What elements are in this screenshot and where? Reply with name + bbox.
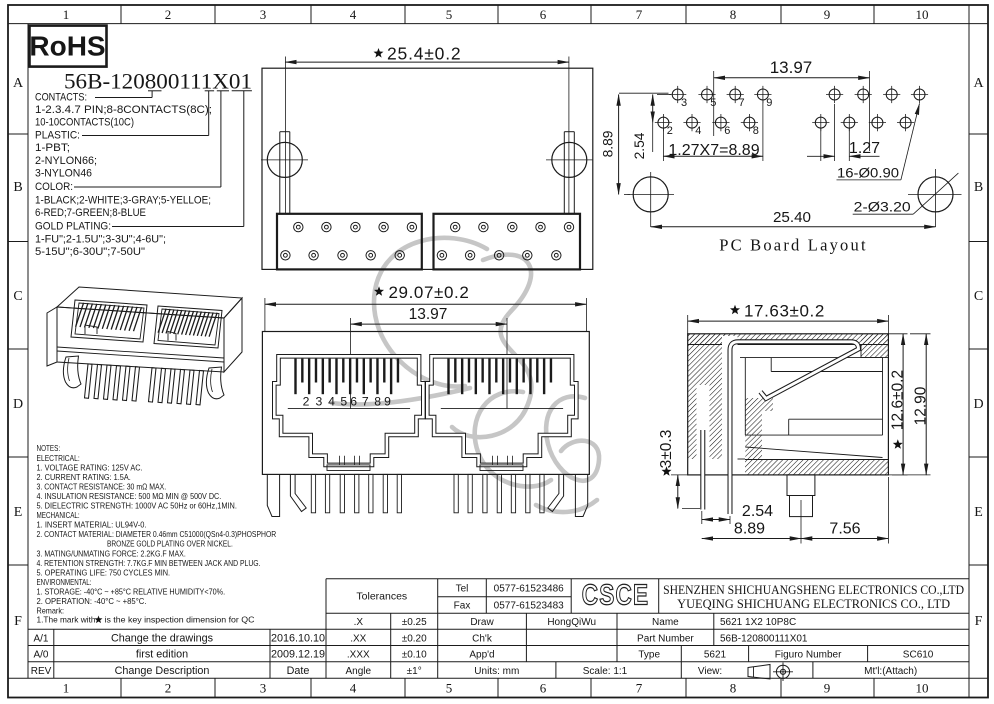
svg-text:Name: Name — [652, 617, 679, 628]
svg-text:5: 5 — [446, 7, 453, 22]
svg-text:2009.12.19: 2009.12.19 — [271, 649, 325, 661]
svg-text:A: A — [13, 76, 24, 91]
svg-text:Change the drawings: Change the drawings — [111, 632, 214, 644]
svg-text:10-10CONTACTS(10C): 10-10CONTACTS(10C) — [35, 117, 134, 129]
svg-text:9: 9 — [384, 394, 391, 408]
svg-text:4: 4 — [328, 394, 335, 408]
svg-text:Date: Date — [287, 665, 310, 677]
svg-text:F: F — [975, 614, 983, 629]
svg-text:F: F — [14, 614, 22, 629]
svg-text:10: 10 — [916, 7, 929, 22]
svg-text:C: C — [974, 289, 983, 304]
svg-text:1. INSERT MATERIAL: UL94V-0.: 1. INSERT MATERIAL: UL94V-0. — [37, 521, 147, 530]
svg-text:4. RETENTION STRENGTH: 7.7KG.F: 4. RETENTION STRENGTH: 7.7KG.F MIN BETWE… — [37, 559, 261, 568]
svg-text:9: 9 — [766, 97, 772, 109]
svg-text:NOTES:: NOTES: — [37, 444, 61, 453]
svg-text:8: 8 — [374, 394, 381, 408]
svg-text:2.54: 2.54 — [632, 132, 647, 159]
svg-text:1-PBT;: 1-PBT; — [35, 142, 70, 154]
svg-text:8: 8 — [730, 7, 737, 22]
svg-text:2: 2 — [303, 394, 310, 408]
svg-text:View:: View: — [698, 666, 722, 677]
svg-text:3-NYLON46: 3-NYLON46 — [35, 168, 92, 180]
svg-text:2. CURRENT RATING: 1.5A.: 2. CURRENT RATING: 1.5A. — [37, 473, 131, 482]
svg-text:.XX: .XX — [350, 633, 366, 644]
svg-text:3: 3 — [681, 97, 687, 109]
svg-text:2. CONTACT MATERIAL: DIAMETER: 2. CONTACT MATERIAL: DIAMETER 0.46mm C51… — [37, 530, 277, 539]
svg-text:±0.20: ±0.20 — [402, 633, 427, 644]
svg-text:Units: mm: Units: mm — [474, 666, 519, 677]
svg-text:3: 3 — [260, 681, 267, 696]
svg-text:SHENZHEN SHICHUANGSHENG ELECTR: SHENZHEN SHICHUANGSHENG ELECTRONICS CO.,… — [663, 583, 964, 597]
svg-text:56B-120800111X01: 56B-120800111X01 — [720, 633, 808, 644]
svg-text:4. INSULATION RESISTANCE: 500: 4. INSULATION RESISTANCE: 500 MΩ MIN @ 5… — [37, 492, 222, 501]
svg-text:GOLD PLATING:: GOLD PLATING: — [35, 221, 111, 233]
svg-text:12.90: 12.90 — [913, 386, 930, 425]
svg-text:6: 6 — [350, 394, 357, 408]
svg-text:App'd: App'd — [469, 650, 494, 661]
svg-text:5. OPERATING LIFE: 750 CYCLES: 5. OPERATING LIFE: 750 CYCLES MIN. — [37, 568, 171, 577]
svg-text:4: 4 — [350, 7, 357, 22]
svg-text:Scale: 1:1: Scale: 1:1 — [583, 666, 628, 677]
svg-text:E: E — [974, 505, 983, 520]
svg-text:A/1: A/1 — [33, 633, 48, 644]
svg-text:is the key inspection dimensio: is the key inspection dimension for QC — [105, 616, 255, 625]
svg-text:29.07±0.2: 29.07±0.2 — [389, 283, 470, 302]
svg-text:A/0: A/0 — [33, 650, 48, 661]
svg-text:7.56: 7.56 — [829, 521, 860, 538]
svg-text:25.40: 25.40 — [773, 209, 811, 226]
svg-text:10: 10 — [916, 681, 929, 696]
svg-text:1. VOLTAGE RATING: 125V AC.: 1. VOLTAGE RATING: 125V AC. — [37, 463, 143, 472]
svg-text:1.27X7=8.89: 1.27X7=8.89 — [668, 142, 759, 159]
svg-text:7: 7 — [636, 681, 643, 696]
svg-text:Change Description: Change Description — [115, 665, 210, 677]
svg-text:5: 5 — [340, 394, 347, 408]
svg-text:B: B — [974, 180, 983, 195]
svg-text:1-FU";2-1.5U";3-3U";4-6U";: 1-FU";2-1.5U";3-3U";4-6U"; — [35, 234, 166, 246]
svg-text:8.89: 8.89 — [601, 130, 616, 157]
svg-text:7: 7 — [362, 394, 369, 408]
svg-text:5. DIELECTRIC STRENGTH: 1000V: 5. DIELECTRIC STRENGTH: 1000V AC 50Hz or… — [37, 502, 237, 511]
svg-text:6-RED;7-GREEN;8-BLUE: 6-RED;7-GREEN;8-BLUE — [35, 207, 146, 219]
svg-text:PC Board Layout: PC Board Layout — [719, 236, 868, 255]
svg-text:3: 3 — [316, 394, 323, 408]
svg-text:Fax: Fax — [454, 601, 471, 612]
svg-text:1: 1 — [63, 7, 70, 22]
svg-text:Mt'l:(Attach): Mt'l:(Attach) — [864, 666, 917, 677]
svg-text:8: 8 — [730, 681, 737, 696]
svg-text:6: 6 — [540, 681, 547, 696]
svg-text:9: 9 — [824, 681, 831, 696]
svg-text:5621 1X2 10P8C: 5621 1X2 10P8C — [720, 617, 796, 628]
svg-text:Angle: Angle — [346, 666, 372, 677]
svg-text:.XXX: .XXX — [347, 650, 370, 661]
svg-text:2016.10.10: 2016.10.10 — [271, 632, 325, 644]
svg-text:5621: 5621 — [704, 650, 727, 661]
svg-text:1: 1 — [63, 681, 70, 696]
svg-text:6: 6 — [540, 7, 547, 22]
svg-text:YUEQING SHICHUANG ELECTRONICS: YUEQING SHICHUANG ELECTRONICS CO., LTD — [677, 597, 950, 611]
svg-text:1.27: 1.27 — [849, 140, 880, 157]
svg-text:B: B — [13, 180, 22, 195]
svg-text:13.97: 13.97 — [770, 58, 813, 77]
svg-text:Tolerances: Tolerances — [356, 591, 407, 603]
svg-text:Tel: Tel — [456, 584, 469, 595]
svg-text:12.6±0.2: 12.6±0.2 — [889, 370, 906, 430]
svg-text:ELECTRICAL:: ELECTRICAL: — [37, 454, 80, 463]
svg-text:25.4±0.2: 25.4±0.2 — [387, 44, 461, 64]
svg-text:±1°: ±1° — [407, 666, 422, 677]
svg-text:first edition: first edition — [136, 649, 188, 661]
svg-text:A: A — [973, 76, 984, 91]
svg-text:4: 4 — [695, 125, 701, 137]
svg-text:9: 9 — [824, 7, 831, 22]
svg-text:Type: Type — [638, 650, 660, 661]
svg-text:SC610: SC610 — [903, 650, 934, 661]
svg-text:Remark:: Remark: — [37, 607, 65, 616]
svg-text:C: C — [13, 289, 22, 304]
svg-text:3: 3 — [260, 7, 267, 22]
svg-text:REV: REV — [31, 666, 52, 677]
svg-text:2.54: 2.54 — [742, 503, 773, 520]
svg-text:7: 7 — [739, 97, 745, 109]
svg-text:D: D — [13, 397, 23, 412]
svg-text:2-Ø3.20: 2-Ø3.20 — [854, 200, 911, 216]
svg-text:5-15U";6-30U";7-50U": 5-15U";6-30U";7-50U" — [35, 246, 145, 258]
svg-text:2: 2 — [165, 7, 172, 22]
svg-text:1-2.3.4.7 PIN;8-8CONTACTS(8C);: 1-2.3.4.7 PIN;8-8CONTACTS(8C); — [35, 104, 212, 116]
svg-text:2. OPERATION: -40°C ~ +85°C.: 2. OPERATION: -40°C ~ +85°C. — [37, 597, 147, 606]
svg-text:Ch'k: Ch'k — [472, 633, 493, 644]
svg-text:PLASTIC:: PLASTIC: — [35, 130, 80, 142]
svg-text:D: D — [973, 397, 983, 412]
svg-text:3±0.3: 3±0.3 — [658, 430, 675, 469]
svg-text:CSCE: CSCE — [582, 578, 650, 611]
svg-text:17.63±0.2: 17.63±0.2 — [744, 301, 825, 320]
svg-text:HongQiWu: HongQiWu — [547, 617, 596, 628]
svg-text:8: 8 — [753, 125, 759, 137]
svg-text:COLOR:: COLOR: — [35, 181, 73, 193]
svg-text:±0.25: ±0.25 — [402, 617, 427, 628]
svg-text:CONTACTS:: CONTACTS: — [35, 92, 87, 104]
svg-text:56B-120800111X01: 56B-120800111X01 — [64, 68, 252, 93]
svg-text:Figuro Number: Figuro Number — [775, 650, 842, 661]
svg-text:1.The mark with: 1.The mark with — [37, 616, 96, 625]
svg-text:E: E — [14, 505, 23, 520]
svg-text:7: 7 — [636, 7, 643, 22]
svg-text:±0.10: ±0.10 — [402, 650, 427, 661]
svg-text:1. STORAGE: -40°C ~ +85°C RELA: 1. STORAGE: -40°C ~ +85°C RELATIVE HUMID… — [37, 587, 226, 596]
svg-text:BRONZE GOLD PLATING OVER NICKE: BRONZE GOLD PLATING OVER NICKEL. — [107, 540, 233, 549]
svg-text:2-NYLON66;: 2-NYLON66; — [35, 155, 97, 167]
svg-text:3. MATING/UNMATING FORCE: 2.2K: 3. MATING/UNMATING FORCE: 2.2KG.F MAX. — [37, 549, 186, 558]
svg-text:Draw: Draw — [470, 617, 494, 628]
svg-text:0577-61523483: 0577-61523483 — [494, 601, 565, 612]
svg-text:.X: .X — [354, 617, 364, 628]
svg-text:8.89: 8.89 — [734, 521, 765, 538]
svg-text:13.97: 13.97 — [409, 306, 448, 323]
svg-text:RoHS: RoHS — [29, 31, 105, 62]
svg-text:5: 5 — [446, 681, 453, 696]
svg-text:16-Ø0.90: 16-Ø0.90 — [837, 165, 899, 181]
svg-text:2: 2 — [667, 125, 673, 137]
svg-text:1-BLACK;2-WHITE;3-GRAY;5-YELLO: 1-BLACK;2-WHITE;3-GRAY;5-YELLOE; — [35, 195, 211, 207]
svg-text:Part Number: Part Number — [637, 633, 694, 644]
svg-text:4: 4 — [350, 681, 357, 696]
svg-text:2: 2 — [165, 681, 172, 696]
svg-text:6: 6 — [724, 125, 730, 137]
svg-text:0577-61523486: 0577-61523486 — [494, 584, 565, 595]
svg-text:MECHANICAL:: MECHANICAL: — [37, 511, 80, 520]
svg-text:ENVIRONMENTAL:: ENVIRONMENTAL: — [37, 578, 92, 587]
svg-text:3. CONTACT RESISTANCE: 30 mΩ M: 3. CONTACT RESISTANCE: 30 mΩ MAX. — [37, 482, 167, 491]
